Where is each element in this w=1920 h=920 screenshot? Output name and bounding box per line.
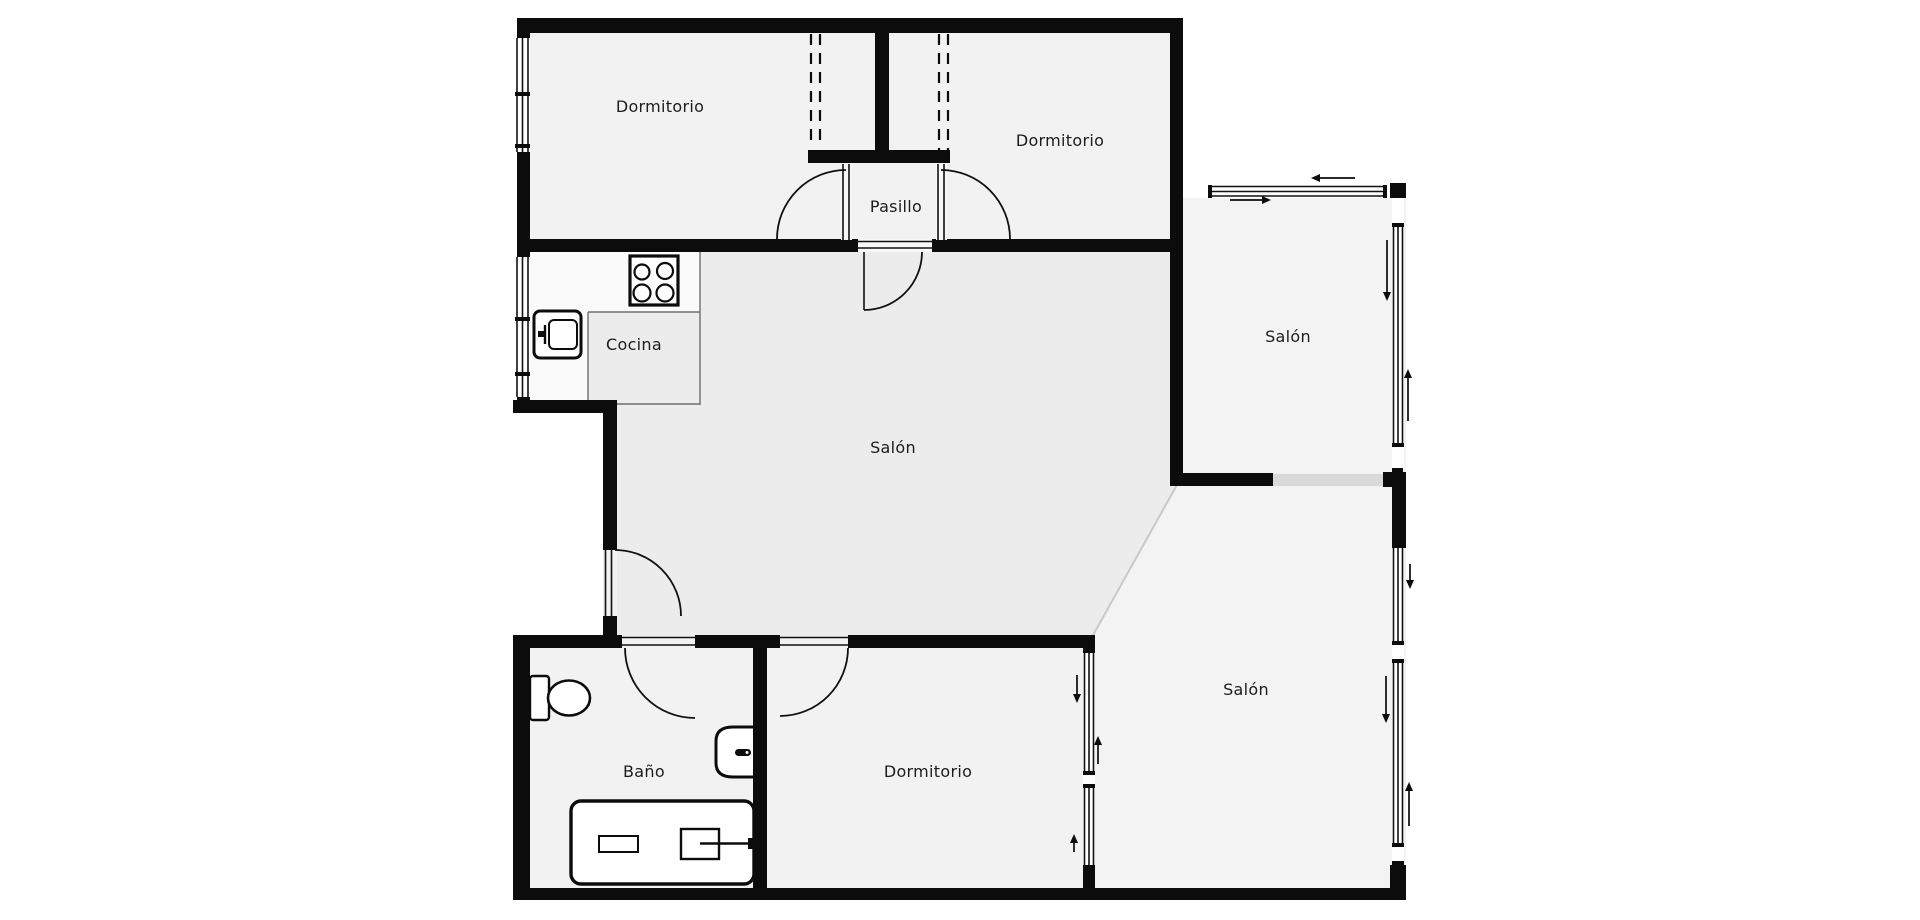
wall (513, 635, 622, 648)
wall (848, 635, 1095, 648)
wall (603, 413, 617, 550)
wall (767, 635, 780, 648)
wall (517, 239, 858, 252)
wall (1172, 473, 1273, 486)
stove-icon (630, 256, 678, 305)
room-label-dormitorio2: Dormitorio (1016, 131, 1104, 150)
wall (932, 239, 1183, 252)
wall (1170, 33, 1183, 486)
window-icon (515, 38, 530, 152)
floor-plan-page: Dormitorio Dormitorio Pasillo Cocina Sal… (0, 0, 1920, 920)
slide-arrow-left-icon (1311, 174, 1355, 182)
cocina-floor (588, 312, 700, 405)
sliding-window-icon (1392, 198, 1404, 468)
toilet-icon (530, 676, 590, 720)
washing-machine-icon (534, 311, 581, 358)
room-label-salon-lower: Salón (1223, 680, 1269, 699)
window-icon (515, 257, 530, 397)
wall (513, 400, 617, 413)
wall (517, 18, 1183, 33)
sliding-window-icon (1183, 185, 1390, 198)
room-label-dormitorio3: Dormitorio (884, 762, 972, 781)
wall (1390, 865, 1406, 900)
sliding-window-icon (1392, 548, 1404, 865)
room-label-salon-upper: Salón (1265, 327, 1311, 346)
wall (1392, 468, 1403, 487)
bathtub-icon (571, 801, 755, 884)
floor-plan: Dormitorio Dormitorio Pasillo Cocina Sal… (0, 0, 1920, 920)
wall (1083, 865, 1095, 900)
wall (1392, 487, 1406, 548)
terrace-divider-opening (1273, 474, 1383, 486)
sink-icon (716, 727, 753, 777)
slide-arrow-down-icon (1406, 564, 1414, 589)
room-label-bano: Baño (623, 762, 665, 781)
sliding-window-icon (1083, 653, 1095, 865)
room-label-pasillo: Pasillo (870, 197, 922, 216)
wall (513, 888, 1406, 900)
wall (1390, 183, 1406, 198)
slide-arrow-up-icon (1405, 782, 1413, 826)
wall (875, 20, 889, 163)
wall (513, 635, 530, 900)
wall (1083, 635, 1095, 653)
room-label-dormitorio1: Dormitorio (616, 97, 704, 116)
room-label-salon-main: Salón (870, 438, 916, 457)
room-label-cocina: Cocina (606, 335, 662, 354)
